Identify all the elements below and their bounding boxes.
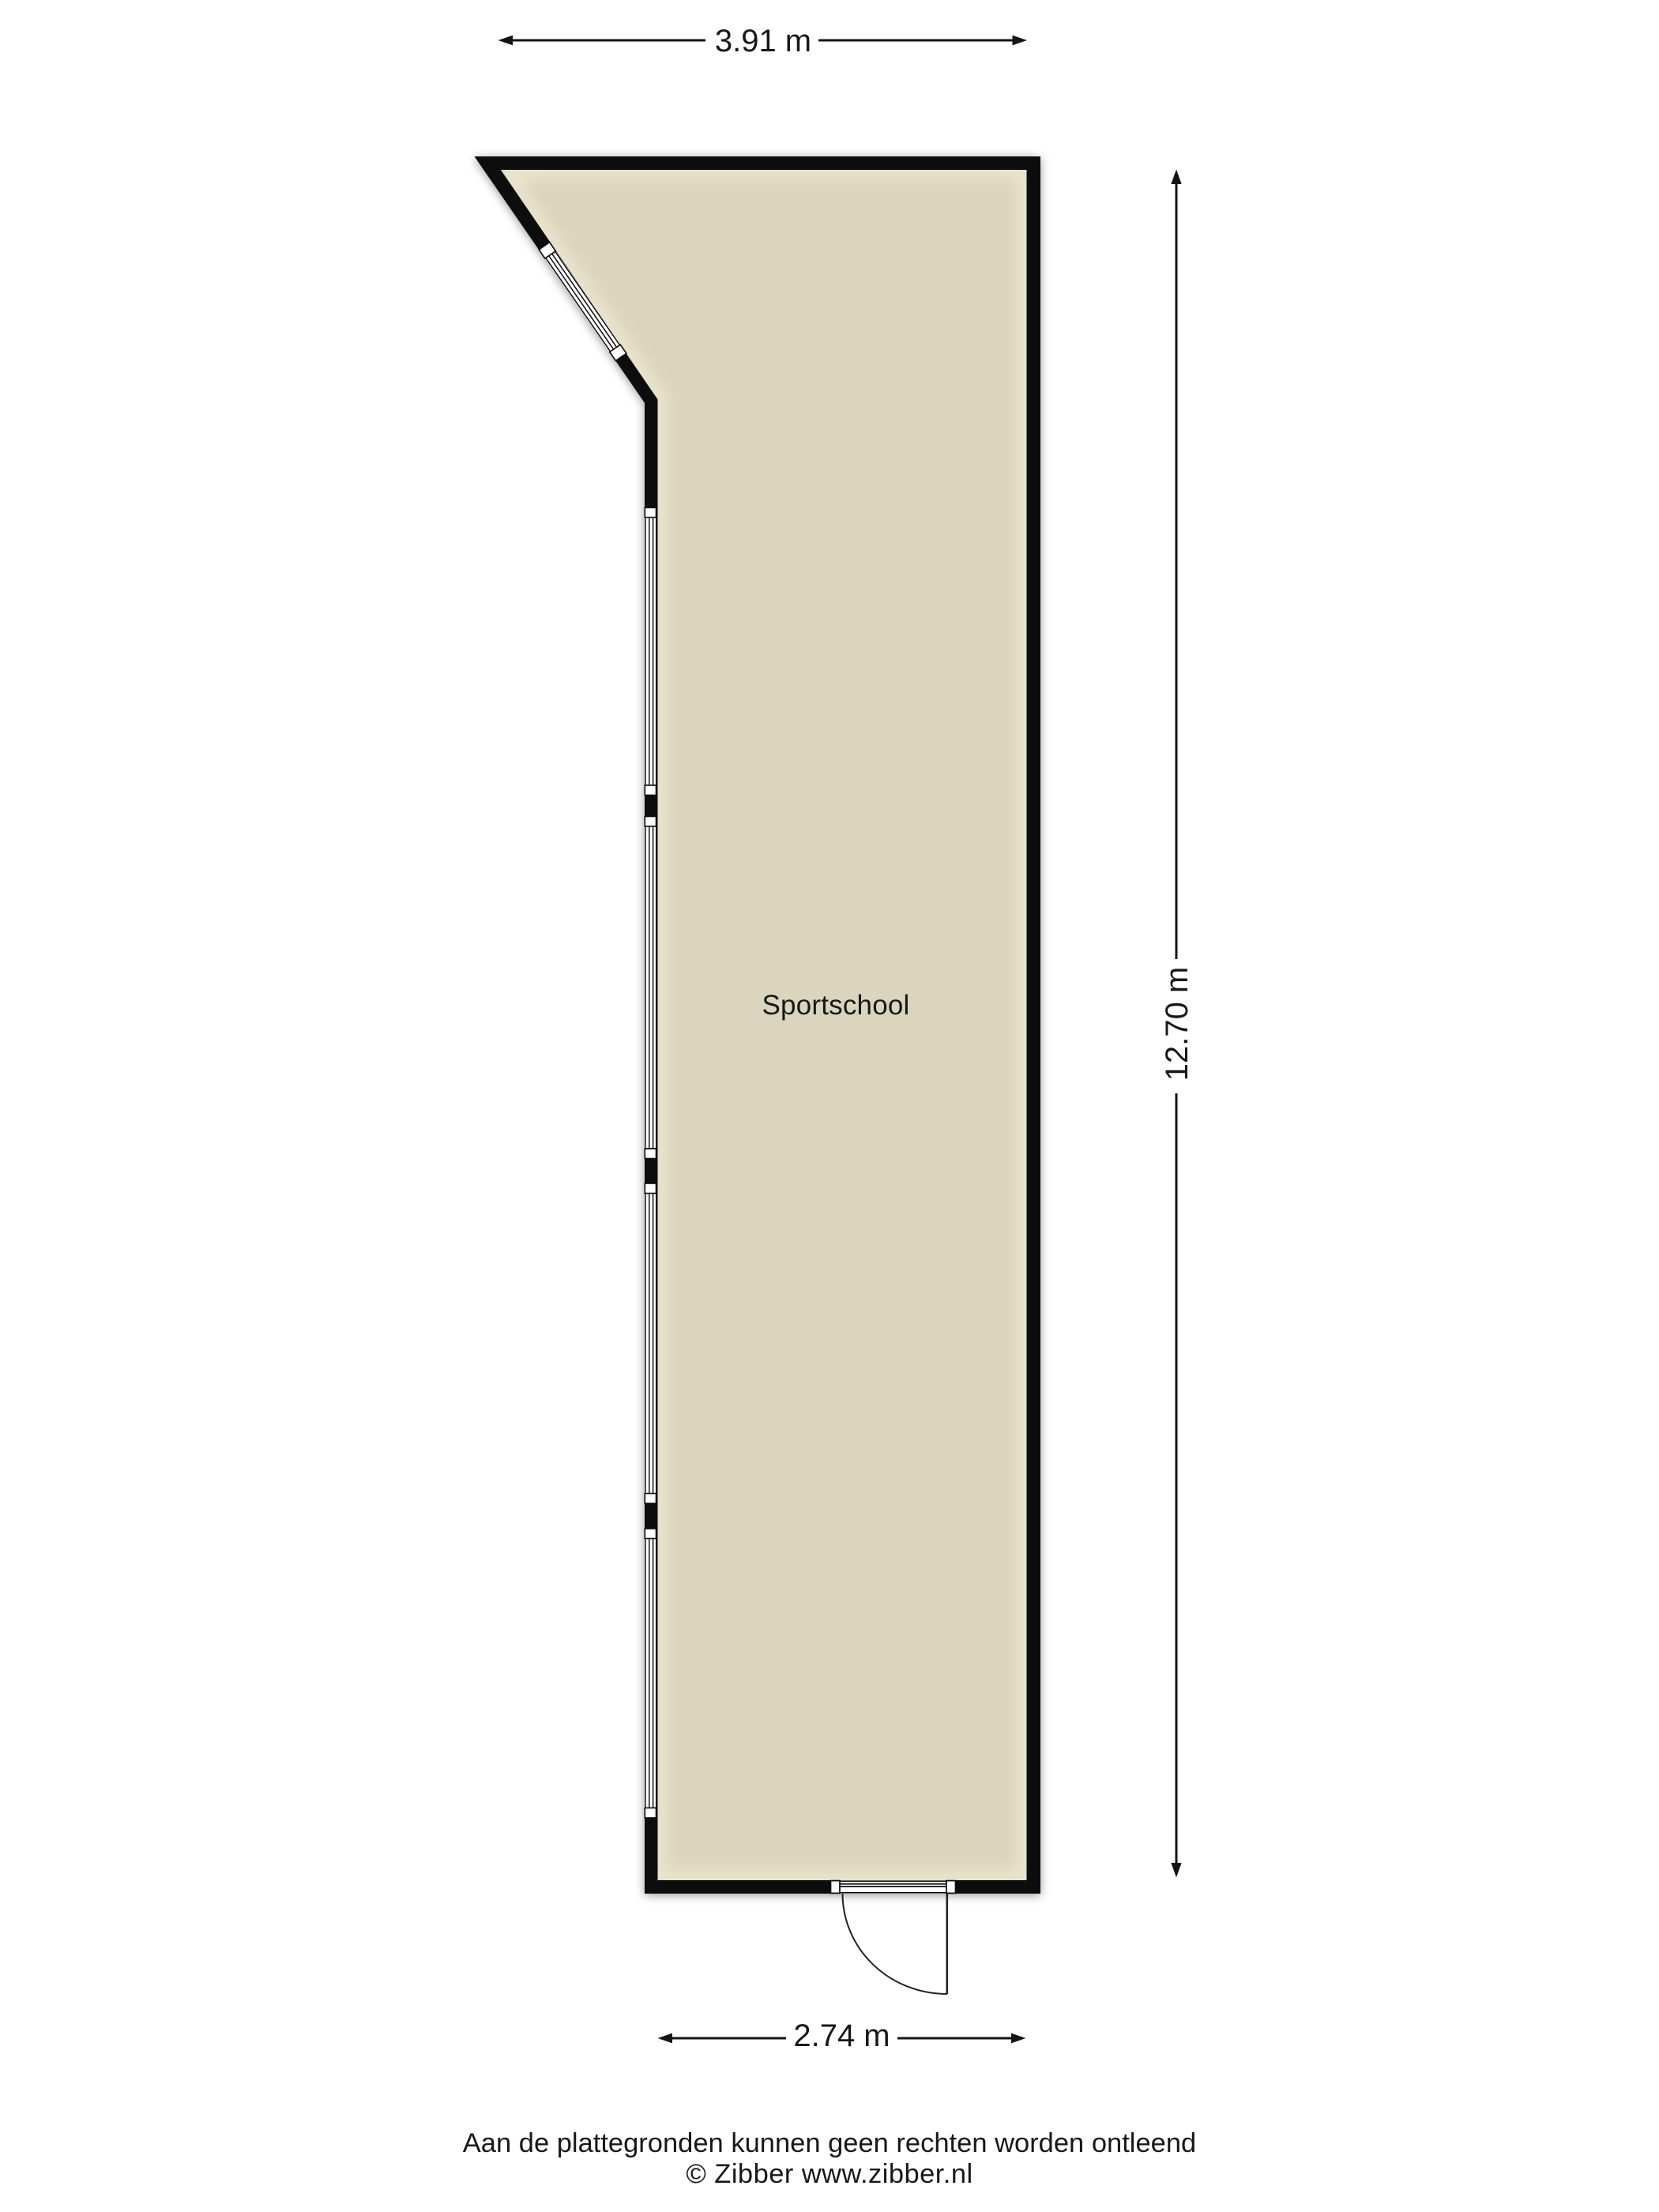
svg-text:3.91 m: 3.91 m xyxy=(715,24,811,58)
svg-text:Sportschool: Sportschool xyxy=(762,990,909,1021)
svg-text:Aan de plattegronden kunnen ge: Aan de plattegronden kunnen geen rechten… xyxy=(463,2128,1196,2158)
svg-text:2.74 m: 2.74 m xyxy=(793,2018,890,2053)
svg-text:© Zibber www.zibber.nl: © Zibber www.zibber.nl xyxy=(686,2159,972,2189)
svg-text:12.70 m: 12.70 m xyxy=(1160,967,1194,1082)
